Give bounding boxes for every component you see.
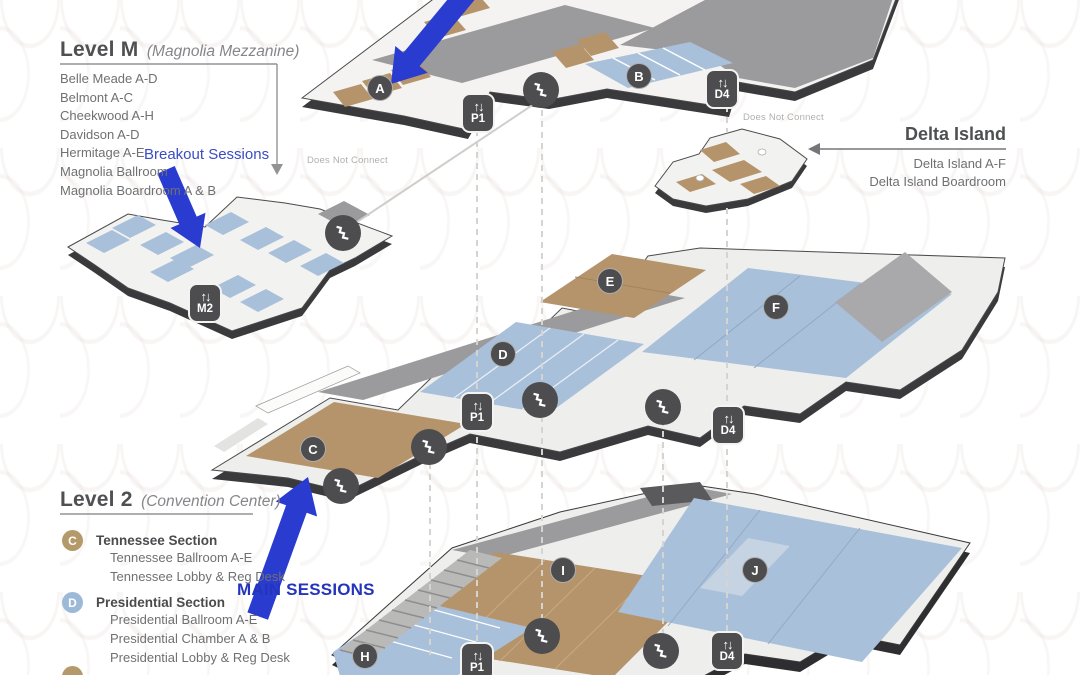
room-item: Presidential Lobby & Reg Desk bbox=[110, 648, 290, 667]
elevator-arrows-icon: ↑↓ bbox=[474, 100, 483, 113]
stairs-icon bbox=[323, 468, 359, 504]
elevator-label: P1 bbox=[471, 114, 485, 126]
room-item: Davidson A-D bbox=[60, 126, 299, 145]
elevator-icon-p1-bottom: ↑↓ P1 bbox=[460, 642, 494, 675]
legend-delta-island: Delta Island Delta Island A-F Delta Isla… bbox=[869, 124, 1006, 191]
elevator-arrows-icon: ↑↓ bbox=[723, 638, 732, 651]
elevator-label: D4 bbox=[715, 90, 730, 102]
elevator-arrows-icon: ↑↓ bbox=[718, 76, 727, 89]
section-name: Tennessee Section bbox=[96, 530, 285, 548]
delta-island-room-list: Delta Island A-F Delta Island Boardroom bbox=[869, 155, 1006, 191]
delta-island-title: Delta Island bbox=[869, 124, 1006, 145]
breakout-sessions-label: Breakout Sessions bbox=[144, 146, 269, 163]
main-sessions-label: MAIN SESSIONS bbox=[237, 580, 375, 600]
map-marker-j: J bbox=[742, 557, 768, 583]
level-m-room-list: Belle Meade A-D Belmont A-C Cheekwood A-… bbox=[60, 70, 299, 200]
map-marker-d: D bbox=[490, 341, 516, 367]
room-item: Magnolia Ballroom bbox=[60, 163, 299, 182]
floor-delta-island bbox=[655, 129, 807, 213]
presidential-section-body: Presidential Section Presidential Ballro… bbox=[96, 592, 290, 667]
elevator-label: D4 bbox=[721, 426, 736, 438]
legend-section-tennessee: C Tennessee Section Tennessee Ballroom A… bbox=[62, 530, 285, 586]
room-item: Belmont A-C bbox=[60, 89, 299, 108]
does-not-connect-label-2: Does Not Connect bbox=[743, 112, 824, 123]
stairs-icon bbox=[643, 633, 679, 669]
map-marker-h: H bbox=[352, 643, 378, 669]
room-item: Delta Island A-F bbox=[869, 155, 1006, 173]
elevator-icon-p1: ↑↓ P1 bbox=[461, 93, 495, 133]
room-item: Presidential Ballroom A-E bbox=[110, 610, 290, 629]
elevator-arrows-icon: ↑↓ bbox=[473, 399, 482, 412]
map-marker-f: F bbox=[763, 294, 789, 320]
room-item: Presidential Chamber A & B bbox=[110, 629, 290, 648]
tennessee-section-body: Tennessee Section Tennessee Ballroom A-E… bbox=[96, 530, 285, 586]
stairs-icon bbox=[524, 618, 560, 654]
elevator-icon-d4-bottom: ↑↓ D4 bbox=[710, 631, 744, 671]
does-not-connect-label-1: Does Not Connect bbox=[307, 155, 388, 166]
map-marker-i: I bbox=[550, 557, 576, 583]
map-marker-a: A bbox=[367, 75, 393, 101]
room-item: Delta Island Boardroom bbox=[869, 173, 1006, 191]
room-item: Tennessee Ballroom A-E bbox=[110, 548, 285, 567]
legend-level-2: Level 2 (Convention Center) bbox=[60, 488, 281, 512]
legend-section-presidential: D Presidential Section Presidential Ball… bbox=[62, 592, 290, 667]
level-2-title: Level 2 (Convention Center) bbox=[60, 488, 281, 512]
stairs-icon bbox=[645, 389, 681, 425]
elevator-label: P1 bbox=[470, 663, 484, 675]
stairs-icon bbox=[411, 429, 447, 465]
stairs-icon bbox=[325, 215, 361, 251]
elevator-label: D4 bbox=[720, 652, 735, 664]
elevator-label: P1 bbox=[470, 413, 484, 425]
elevator-icon-d4-mid: ↑↓ D4 bbox=[711, 405, 745, 445]
elevator-icon-m2: ↑↓ M2 bbox=[188, 283, 222, 323]
elevator-icon-d4: ↑↓ D4 bbox=[705, 69, 739, 109]
room-item: Magnolia Boardroom A & B bbox=[60, 182, 299, 201]
level-m-title-text: Level M bbox=[60, 38, 138, 61]
level-m-title: Level M (Magnolia Mezzanine) bbox=[60, 38, 299, 62]
presidential-section-marker: D bbox=[62, 592, 83, 613]
stairs-icon bbox=[523, 72, 559, 108]
elevator-arrows-icon: ↑↓ bbox=[724, 412, 733, 425]
level-2-title-text: Level 2 bbox=[60, 488, 133, 511]
room-item: Cheekwood A-H bbox=[60, 107, 299, 126]
venue-map-page: Level M (Magnolia Mezzanine) Belle Meade… bbox=[0, 0, 1080, 675]
elevator-icon-p1-mid: ↑↓ P1 bbox=[460, 392, 494, 432]
room-item: Belle Meade A-D bbox=[60, 70, 299, 89]
elevator-label: M2 bbox=[197, 304, 213, 316]
level-m-subtitle: (Magnolia Mezzanine) bbox=[147, 43, 300, 60]
map-marker-b: B bbox=[626, 63, 652, 89]
map-marker-e: E bbox=[597, 268, 623, 294]
legend-level-m: Level M (Magnolia Mezzanine) Belle Meade… bbox=[60, 38, 299, 200]
elevator-arrows-icon: ↑↓ bbox=[473, 649, 482, 662]
elevator-arrows-icon: ↑↓ bbox=[201, 290, 210, 303]
tennessee-section-marker: C bbox=[62, 530, 83, 551]
level-2-subtitle: (Convention Center) bbox=[141, 493, 281, 510]
map-marker-c: C bbox=[300, 436, 326, 462]
stairs-icon bbox=[522, 382, 558, 418]
